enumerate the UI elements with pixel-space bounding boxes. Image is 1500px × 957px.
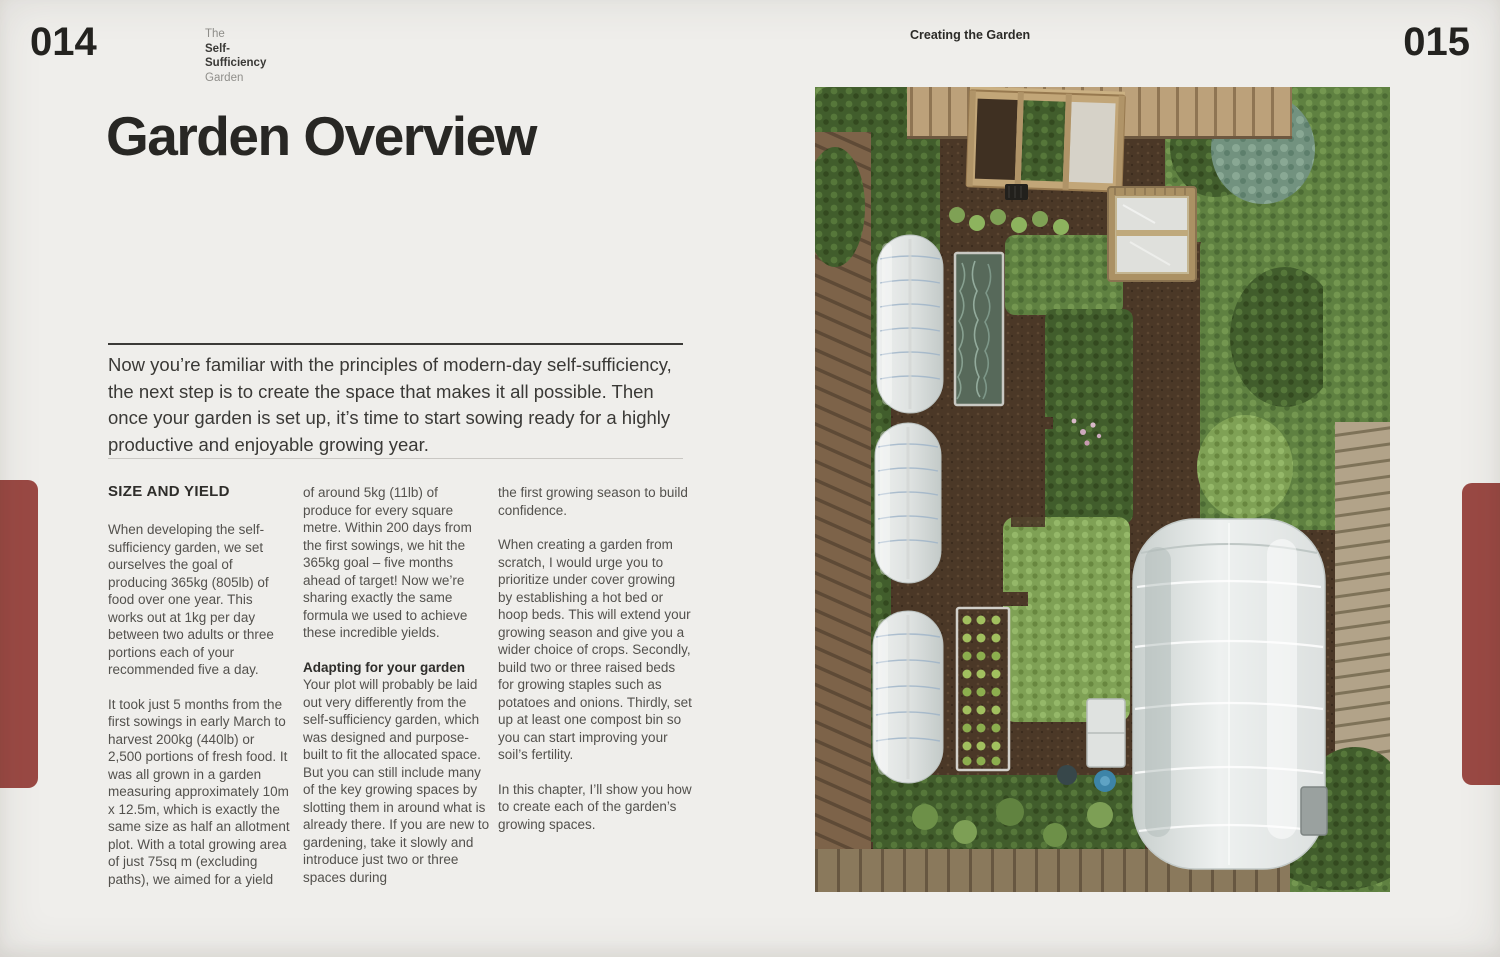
lettuce-bed: [957, 608, 1009, 770]
text-column-2: of around 5kg (11lb) of produce for ever…: [303, 484, 490, 903]
book-spread: 014 The Self- Sufficiency Garden Garden …: [0, 0, 1500, 957]
compost-bins: [967, 87, 1125, 192]
hoop-tunnel-2: [875, 423, 941, 583]
divider-rule-bottom: [108, 458, 683, 459]
column2-paragraph-2: Your plot will probably be laid out very…: [303, 676, 490, 886]
chapter-tab-right: [1462, 483, 1500, 785]
hoop-tunnel-1: [877, 235, 943, 413]
page-title: Garden Overview: [106, 104, 536, 168]
leek-bed: [955, 253, 1003, 405]
garden-aerial-illustration: [815, 87, 1390, 892]
subsection-heading: Adapting for your garden: [303, 659, 490, 677]
right-fence: [1335, 422, 1390, 802]
column2-paragraph-1: of around 5kg (11lb) of produce for ever…: [303, 484, 490, 642]
divider-rule-top: [108, 343, 683, 345]
book-title-line3: Sufficiency: [205, 56, 266, 71]
text-column-3: the first growing season to build confid…: [498, 484, 692, 850]
cold-frame: [1108, 187, 1196, 281]
water-butt: [1301, 787, 1327, 835]
ground-grate: [1005, 184, 1028, 200]
right-page-number: 015: [1403, 20, 1470, 65]
book-title-line1: The: [205, 27, 266, 42]
column3-paragraph-3: In this chapter, I’ll show you how to cr…: [498, 781, 692, 834]
text-column-1: SIZE AND YIELD When developing the self-…: [108, 484, 290, 905]
large-polytunnel: [1133, 519, 1327, 869]
column3-paragraph-1: the first growing season to build confid…: [498, 484, 692, 519]
column1-paragraph-1: When developing the self-sufficiency gar…: [108, 521, 290, 679]
running-header: Creating the Garden: [910, 28, 1030, 42]
intro-paragraph: Now you’re familiar with the principles …: [108, 352, 693, 458]
column1-paragraph-2: It took just 5 months from the first sow…: [108, 696, 290, 889]
book-title-line2: Self-: [205, 42, 266, 57]
column3-paragraph-2: When creating a garden from scratch, I w…: [498, 536, 692, 764]
book-title-line4: Garden: [205, 71, 266, 86]
hoop-tunnel-3: [873, 611, 943, 783]
left-page-number: 014: [30, 20, 97, 65]
chapter-tab-left: [0, 480, 38, 788]
book-title: The Self- Sufficiency Garden: [205, 27, 266, 85]
garden-aerial-photo: [815, 87, 1390, 892]
watering-can-dark: [1057, 765, 1077, 785]
section-heading: SIZE AND YIELD: [108, 484, 290, 500]
